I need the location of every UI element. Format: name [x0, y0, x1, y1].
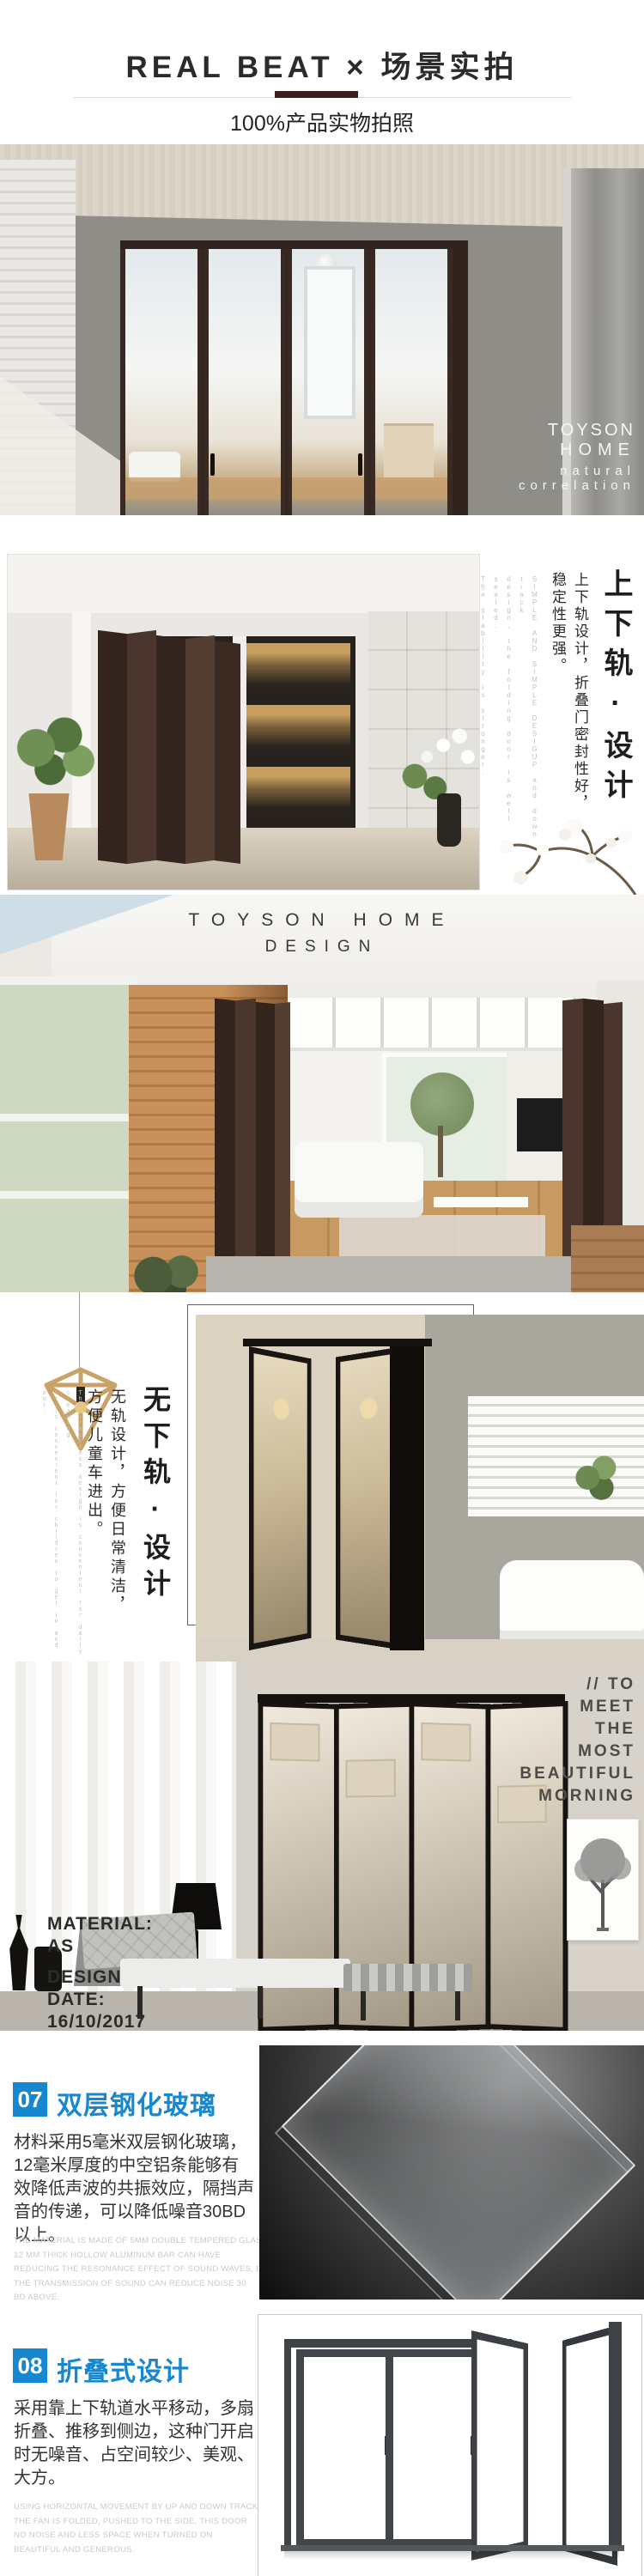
tree-trunk [438, 1126, 443, 1177]
folded-door-slat [127, 630, 156, 864]
slogan-text: // TO MEET THE MOST BEAUTIFUL MORNING [519, 1674, 635, 1807]
green-plant [568, 1450, 623, 1500]
white-sofa [295, 1142, 423, 1218]
door-handle [358, 453, 362, 476]
brand-tagline: correlation [519, 478, 635, 493]
tree-artwork-illustration [568, 1820, 638, 1940]
en-line: BEAUTIFUL AND GENEROUS. [14, 2543, 288, 2558]
divider-accent-bar [275, 91, 358, 98]
en-line: REDUCING THE RESONANCE EFFECT OF SOUND W… [14, 2263, 301, 2277]
balcony-door-through-glass [304, 266, 355, 419]
en-column: SIMPLE AND SIMPLE DESIGUP and down track [515, 575, 541, 841]
brand-line: HOME [519, 440, 635, 460]
fixed-door-panel [296, 2349, 394, 2547]
folded-door-stack [235, 999, 256, 1285]
coffee-table [434, 1197, 528, 1207]
wood-floor-through-glass [209, 477, 281, 500]
en-line: USING HORIZONTAL MOVEMENT BY UP AND DOWN… [14, 2500, 288, 2515]
door-handle [210, 453, 215, 476]
folded-door-slat [185, 635, 215, 864]
en-column: The stability is stronger. [477, 575, 489, 841]
material-line: AS [47, 1935, 153, 1958]
brand-text: TOYSON HOME [0, 910, 644, 931]
kitchen-reflection [346, 1759, 396, 1798]
section-body-vertical: 无轨设计，方便日常清洁， 方便儿童车进出。 [82, 1388, 129, 1663]
section-heading-vertical: 上下轨·设计 [595, 568, 637, 843]
glass-panel [282, 2045, 635, 2300]
photo-bathroom-bifold-door [196, 1315, 644, 1662]
flower-branch-illustration [489, 817, 644, 895]
sofa-through-glass [129, 452, 180, 481]
chaise-leg [361, 1988, 366, 2020]
sliding-door-panel [386, 2349, 480, 2547]
folded-door-stack [275, 1002, 290, 1284]
door-panel [204, 249, 286, 515]
en-line: THE FAN IS FOLDED, PUSHED TO THE SIDE, T… [14, 2515, 288, 2530]
wood-floor-through-glass [375, 477, 447, 500]
door-panel [287, 249, 369, 515]
folded-door-stack [215, 999, 235, 1285]
en-line: THE MATERIAL IS MADE OF 5MM DOUBLE TEMPE… [14, 2234, 301, 2249]
concrete-path [206, 1256, 601, 1292]
feature-english: THE MATERIAL IS MADE OF 5MM DOUBLE TEMPE… [14, 2234, 301, 2306]
cabinet-through-glass [384, 423, 434, 477]
en-column: The trackless design is convenient for d… [62, 1390, 86, 1674]
bifold-leaf [249, 1346, 311, 1650]
photo-open-folding-doors: TOYSON HOME DESIGN [0, 895, 644, 1292]
en-column: design, the folding door is well sealed. [489, 575, 515, 841]
top-track [243, 1339, 432, 1346]
slogan-line: // TO [519, 1674, 635, 1696]
window-mullion [0, 1191, 129, 1199]
feature-body: 采用靠上下轨道水平移动，多扇折叠、推移到侧边，这种门开启时无噪音、占空间较少、美… [14, 2397, 256, 2490]
feature-number-badge: 08 [13, 2348, 47, 2383]
slogan-line: BEAUTIFUL [519, 1763, 635, 1785]
brand-line: TOYSON [519, 421, 635, 440]
folded-door-panel [471, 2330, 528, 2561]
chaise-leg [455, 1988, 460, 2020]
door-panel [120, 249, 203, 515]
bifold-leaf-edge [390, 1346, 424, 1650]
wood-floor-through-glass [125, 477, 197, 500]
ceiling [8, 555, 479, 613]
hero-photo-closed-door: TOYSON HOME natural correlation [0, 144, 644, 515]
left-window [0, 976, 137, 1292]
photo-tempered-glass [259, 2045, 644, 2300]
en-line: THE TRANSMISSION OF SOUND CAN REDUCE NOI… [14, 2277, 301, 2292]
feature-title: 折叠式设计 [57, 2350, 190, 2388]
shrub [129, 1251, 210, 1292]
door-panel [370, 249, 453, 515]
section-feature-07: 07 双层钢化玻璃 材料采用5毫米双层钢化玻璃，12毫米厚度的中空铝条能够有效降… [0, 2052, 644, 2310]
section-morning-photo: // TO MEET THE MOST BEAUTIFUL MORNING MA… [0, 1662, 644, 2031]
folded-door-slat [156, 635, 185, 864]
section-trackless: 无下轨·设计 无轨设计，方便日常清洁， 方便儿童车进出。 The trackle… [0, 1292, 644, 1662]
material-note: MATERIAL: AS DESIGN DATE: 16/10/2017 [47, 1913, 153, 2031]
slogan-line: THE [519, 1718, 635, 1741]
en-line: NO NOISE AND LESS SPACE WHEN TURNED ON [14, 2529, 288, 2543]
brand-tagline: natural [519, 464, 635, 478]
leaf-glass [253, 1353, 307, 1643]
floor-shadow [284, 2551, 619, 2560]
section-updown-track: 上下轨·设计 上下轨设计，折叠门密封性好， 稳定性更强。 SIMPLE AND … [0, 515, 644, 895]
feature-title: 双层钢化玻璃 [57, 2084, 216, 2122]
feature-number-badge: 07 [13, 2082, 47, 2117]
striped-bench [343, 1964, 472, 1991]
brand-text: DESIGN [0, 938, 644, 957]
bathtub [500, 1560, 644, 1643]
brand-watermark: TOYSON HOME natural correlation [519, 421, 635, 493]
product-detail-page: REAL BEAT × 场景实拍 100%产品实物拍照 [0, 0, 644, 2576]
section-feature-08: 08 折叠式设计 采用靠上下轨道水平移动，多扇折叠、推移到侧边，这种门开启时无噪… [0, 2310, 644, 2576]
door-frame-right [609, 2322, 622, 2547]
photo-accordion-door-kitchen [7, 554, 480, 890]
potted-plant [8, 714, 102, 799]
flower-vase [437, 793, 461, 847]
kitchen-reflection [270, 1722, 319, 1762]
interior-living-room [288, 998, 597, 1262]
slogan-line: MEET [519, 1696, 635, 1718]
rug [339, 1215, 545, 1262]
page-subtitle: 100%产品实物拍照 [0, 106, 644, 137]
en-line: 12 MM THICK HOLLOW ALUMINUM BAR CAN HAVE [14, 2249, 301, 2263]
body-column: 方便儿童车进出。 [82, 1388, 106, 1663]
en-column: It is convenient for children to get in … [38, 1390, 62, 1674]
kitchen-reflection [421, 1722, 471, 1762]
chaise-seat [120, 1959, 350, 1988]
material-line: MATERIAL: [47, 1913, 153, 1935]
tree-artwork-frame [567, 1819, 639, 1941]
section-english-vertical: SIMPLE AND SIMPLE DESIGUP and down track… [477, 575, 541, 841]
section-heading-vertical: 无下轨·设计 [136, 1385, 175, 1643]
material-line: DESIGN [47, 1966, 153, 1989]
folded-door-slat [98, 630, 127, 864]
body-column: 无轨设计，方便日常清洁， [106, 1388, 129, 1663]
folding-door-diagram [258, 2314, 642, 2576]
en-line: BD ABOVE. [14, 2291, 301, 2306]
feature-english: USING HORIZONTAL MOVEMENT BY UP AND DOWN… [14, 2500, 288, 2557]
slogan-line: MORNING [519, 1785, 635, 1807]
door-sill [281, 2545, 624, 2551]
section-english-vertical: The trackless design is convenient for d… [38, 1390, 86, 1674]
window-mullion [0, 1114, 129, 1121]
floor [8, 828, 479, 890]
slogan-line: MOST [519, 1741, 635, 1763]
door-frame-left [284, 2339, 291, 2545]
brick-floor [571, 1225, 644, 1292]
lamp-cord [79, 1292, 80, 1368]
spacer [47, 1958, 153, 1966]
material-line: 16/10/2017 [47, 2011, 153, 2031]
clerestory-windows [288, 998, 597, 1051]
feature-body: 材料采用5毫米双层钢化玻璃，12毫米厚度的中空铝条能够有效降低声波的共振效应，隔… [14, 2131, 256, 2247]
material-line: DATE: [47, 1989, 153, 2011]
wood-floor-through-glass [292, 477, 364, 500]
page-title: REAL BEAT × 场景实拍 [0, 43, 644, 87]
white-flowers [398, 722, 480, 799]
chaise-leg [258, 1986, 263, 2019]
folded-door-slat [215, 641, 240, 864]
folding-door-closed [120, 240, 468, 515]
folded-door-stack [256, 1002, 275, 1284]
